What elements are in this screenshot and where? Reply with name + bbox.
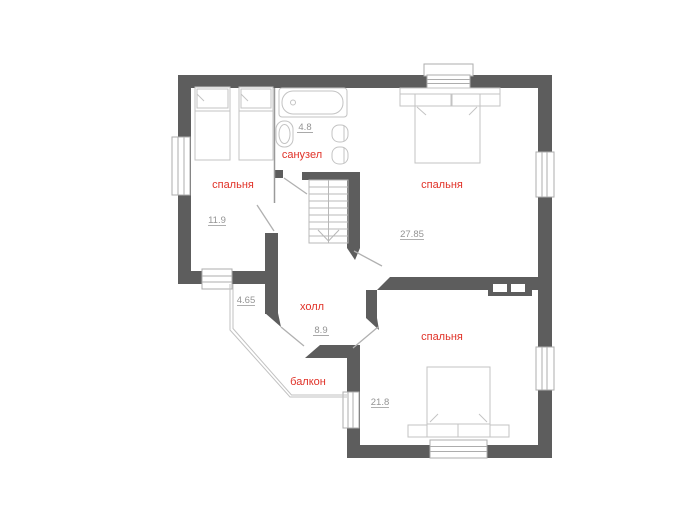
area-bathroom: 4.8 — [298, 122, 311, 133]
bidet — [332, 147, 348, 164]
wall-top — [178, 75, 552, 88]
area-bedroom-top-right: 27.85 — [400, 229, 424, 240]
wall-right — [538, 75, 552, 458]
label-hall: холл — [300, 301, 324, 313]
window-balcony-door — [202, 269, 232, 289]
label-bathroom: санузел — [282, 149, 322, 161]
toilet — [332, 125, 348, 142]
floor-plan-svg: спальня санузел спальня холл балкон спал… — [0, 0, 700, 525]
window-right-top — [536, 152, 554, 197]
area-bedroom-left: 11.9 — [208, 215, 226, 226]
wall-closet — [488, 281, 532, 296]
wall-stair-right — [347, 172, 360, 248]
label-bedroom-bottom-right: спальня — [421, 331, 463, 343]
label-bedroom-top-right: спальня — [421, 179, 463, 191]
window-top-wall — [424, 64, 473, 88]
area-balcony: 4.65 — [237, 295, 256, 306]
bed-single-1 — [195, 87, 230, 160]
floor-plan: спальня санузел спальня холл балкон спал… — [0, 0, 700, 525]
window-left-wall — [172, 137, 190, 195]
wall-hall-bedroom-stub — [366, 290, 377, 318]
wall-bathroom-bottom — [302, 172, 347, 180]
bed-single-2 — [239, 87, 273, 160]
sink — [276, 121, 293, 147]
area-hall: 8.9 — [314, 325, 327, 336]
wall-bathroom-door-stub — [274, 170, 283, 178]
label-balcony: балкон — [290, 376, 326, 388]
bathtub — [279, 88, 347, 117]
label-bedroom-left: спальня — [212, 179, 254, 191]
wall-hall-left — [265, 233, 278, 314]
area-bedroom-bottom-right: 21.8 — [371, 397, 390, 408]
window-bottom-wall — [430, 440, 487, 458]
window-right-bottom — [536, 347, 554, 390]
